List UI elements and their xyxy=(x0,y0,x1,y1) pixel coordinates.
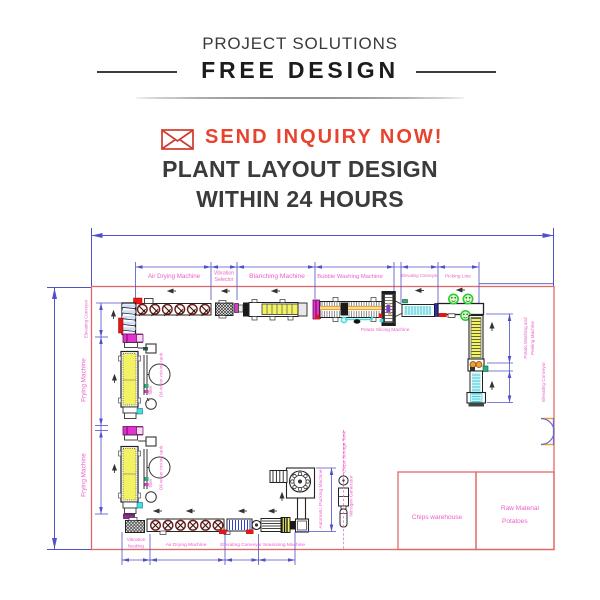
svg-text:Elevating Conveyor: Elevating Conveyor xyxy=(541,362,546,402)
svg-text:Potato Slicing Machine: Potato Slicing Machine xyxy=(361,327,410,333)
svg-text:Elevating Conveyor: Elevating Conveyor xyxy=(220,542,262,548)
svg-text:Picking Line: Picking Line xyxy=(445,274,471,280)
svg-text:Selector: Selector xyxy=(214,277,233,283)
svg-text:Peeling Machine: Peeling Machine xyxy=(530,321,535,355)
svg-text:Bubble Washing Machine: Bubble Washing Machine xyxy=(317,274,383,280)
svg-text:Blanching Machine: Blanching Machine xyxy=(249,273,305,280)
svg-text:Oil-water mixing tank: Oil-water mixing tank xyxy=(159,352,165,397)
svg-text:Air Drying Machine: Air Drying Machine xyxy=(166,542,207,548)
svg-text:filter: filter xyxy=(148,385,154,394)
svg-text:Vibration: Vibration xyxy=(214,271,234,277)
svg-text:Automatic Packing Machine: Automatic Packing Machine xyxy=(318,469,324,529)
svg-text:feeding: feeding xyxy=(128,544,144,550)
svg-text:Nitrogen Generator: Nitrogen Generator xyxy=(349,475,355,516)
svg-text:filter: filter xyxy=(148,478,154,487)
svg-text:Chips Storage Tank: Chips Storage Tank xyxy=(342,431,348,473)
svg-text:Chips warehouse: Chips warehouse xyxy=(412,514,463,521)
svg-text:Frying Machine: Frying Machine xyxy=(81,453,88,497)
svg-text:Seasoning Machine: Seasoning Machine xyxy=(263,542,305,548)
svg-text:Potatoes: Potatoes xyxy=(502,518,528,525)
svg-text:Vibration: Vibration xyxy=(127,537,146,543)
svg-text:Potato Washing and: Potato Washing and xyxy=(523,317,528,359)
svg-text:Frying Machine: Frying Machine xyxy=(81,358,88,402)
svg-text:Raw Material: Raw Material xyxy=(501,505,539,512)
svg-text:Elevating Conveyor: Elevating Conveyor xyxy=(84,299,89,338)
svg-text:Oil-water mixing tank: Oil-water mixing tank xyxy=(159,445,165,490)
svg-text:Elevating Conveyor: Elevating Conveyor xyxy=(401,273,438,278)
svg-text:Air Drying Machine: Air Drying Machine xyxy=(148,273,201,280)
